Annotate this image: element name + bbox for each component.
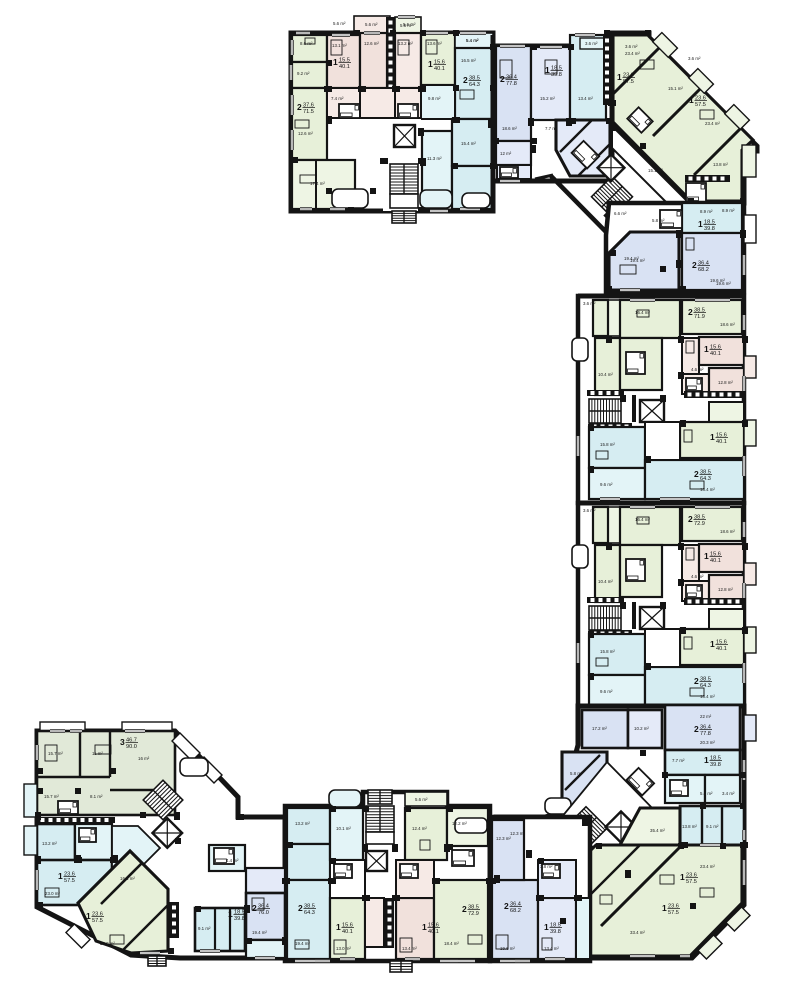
svg-text:18.4 m²: 18.4 m² <box>700 487 715 492</box>
svg-text:16.5 m²: 16.5 m² <box>461 58 476 63</box>
svg-text:8.9 m²: 8.9 m² <box>722 208 735 213</box>
svg-text:2: 2 <box>298 903 303 913</box>
svg-text:39.8: 39.8 <box>704 226 715 232</box>
svg-text:33.4 m²: 33.4 m² <box>630 930 645 935</box>
svg-text:5.6 m²: 5.6 m² <box>365 22 378 27</box>
svg-text:12.8 m²: 12.8 m² <box>718 380 733 385</box>
svg-text:12 m²: 12 m² <box>500 151 512 156</box>
svg-text:1: 1 <box>544 922 549 932</box>
svg-text:3: 3 <box>120 737 125 747</box>
svg-text:57.5: 57.5 <box>92 918 103 924</box>
svg-text:18.6 m²: 18.6 m² <box>720 529 735 534</box>
svg-text:77.8: 77.8 <box>506 81 517 87</box>
svg-text:1: 1 <box>680 872 685 882</box>
svg-text:9.1 m²: 9.1 m² <box>198 926 211 931</box>
svg-text:72.9: 72.9 <box>694 521 705 527</box>
svg-text:12.4 m²: 12.4 m² <box>412 826 427 831</box>
svg-text:40.1: 40.1 <box>339 64 350 70</box>
svg-text:7.4 m²: 7.4 m² <box>331 96 344 101</box>
svg-text:9.6 m²: 9.6 m² <box>600 689 613 694</box>
svg-text:1: 1 <box>704 755 709 765</box>
svg-text:8.6 m²: 8.6 m² <box>300 41 313 46</box>
svg-text:13.6 m²: 13.6 m² <box>427 41 442 46</box>
svg-text:3.6 m²: 3.6 m² <box>625 44 638 49</box>
svg-text:5.8 m²: 5.8 m² <box>570 771 583 776</box>
svg-text:57.5: 57.5 <box>64 878 75 884</box>
svg-text:12.3 m²: 12.3 m² <box>510 831 525 836</box>
svg-text:1: 1 <box>662 903 667 913</box>
svg-text:1: 1 <box>704 551 709 561</box>
svg-text:2: 2 <box>688 514 693 524</box>
svg-text:1: 1 <box>698 219 703 229</box>
svg-text:20.3 m²: 20.3 m² <box>700 740 715 745</box>
svg-text:18.4 m²: 18.4 m² <box>700 694 715 699</box>
svg-text:1: 1 <box>545 65 550 75</box>
svg-text:2: 2 <box>297 102 302 112</box>
svg-text:13.2 m²: 13.2 m² <box>42 841 57 846</box>
svg-text:19.4 m²: 19.4 m² <box>295 941 310 946</box>
svg-text:57.5: 57.5 <box>695 102 706 108</box>
svg-text:39.8: 39.8 <box>234 916 245 922</box>
svg-text:2: 2 <box>252 903 257 913</box>
svg-text:40.1: 40.1 <box>710 558 721 564</box>
svg-text:1: 1 <box>422 922 427 932</box>
svg-text:2: 2 <box>500 74 505 84</box>
svg-text:4.6 m²: 4.6 m² <box>691 367 704 372</box>
svg-text:12.2 m²: 12.2 m² <box>452 821 467 826</box>
svg-text:2: 2 <box>504 901 509 911</box>
svg-text:68.2: 68.2 <box>510 908 521 914</box>
svg-text:1: 1 <box>86 911 91 921</box>
svg-text:23.0 m²: 23.0 m² <box>45 891 60 896</box>
svg-text:22 m²: 22 m² <box>700 714 712 719</box>
svg-text:40.1: 40.1 <box>434 66 445 72</box>
svg-text:76.0: 76.0 <box>258 910 269 916</box>
svg-text:39.8: 39.8 <box>710 762 721 768</box>
svg-text:68.2: 68.2 <box>698 267 709 273</box>
svg-text:12.8 m²: 12.8 m² <box>718 587 733 592</box>
svg-text:23.4 m²: 23.4 m² <box>625 51 640 56</box>
svg-text:10.1 m²: 10.1 m² <box>336 826 351 831</box>
svg-text:77.8: 77.8 <box>700 731 711 737</box>
svg-text:1: 1 <box>58 871 63 881</box>
svg-text:3.6 m²: 3.6 m² <box>583 508 596 513</box>
svg-text:16.1 m²: 16.1 m² <box>120 876 135 881</box>
svg-text:1: 1 <box>336 922 341 932</box>
svg-text:64.3: 64.3 <box>700 476 711 482</box>
svg-text:15.2 m²: 15.2 m² <box>540 96 555 101</box>
svg-text:5.8 m²: 5.8 m² <box>652 218 665 223</box>
svg-text:13.4 m²: 13.4 m² <box>402 946 417 951</box>
svg-text:10.4 m²: 10.4 m² <box>598 372 613 377</box>
svg-text:23.0 m²: 23.0 m² <box>100 941 115 946</box>
svg-text:64.3: 64.3 <box>304 910 315 916</box>
svg-text:40.1: 40.1 <box>342 929 353 935</box>
svg-text:13.8 m²: 13.8 m² <box>713 162 728 167</box>
svg-text:18.4 m²: 18.4 m² <box>444 941 459 946</box>
svg-text:1: 1 <box>617 72 622 82</box>
svg-text:15.1 m²: 15.1 m² <box>648 168 663 173</box>
svg-text:1: 1 <box>704 344 709 354</box>
svg-text:3.4 m²: 3.4 m² <box>722 791 735 796</box>
svg-text:39.8: 39.8 <box>550 929 561 935</box>
svg-text:3.6 m²: 3.6 m² <box>585 41 598 46</box>
svg-text:19.6 m²: 19.6 m² <box>716 281 731 286</box>
svg-text:64.3: 64.3 <box>469 82 480 88</box>
svg-text:5.6 m²: 5.6 m² <box>415 797 428 802</box>
svg-text:13.0 m²: 13.0 m² <box>336 946 351 951</box>
svg-text:13.4 m²: 13.4 m² <box>578 96 593 101</box>
svg-text:16 m²: 16 m² <box>138 756 150 761</box>
svg-text:90.0: 90.0 <box>126 744 137 750</box>
svg-text:40.1: 40.1 <box>716 646 727 652</box>
svg-text:13.2 m²: 13.2 m² <box>398 41 413 46</box>
svg-text:1: 1 <box>428 59 433 69</box>
svg-text:10.4 m²: 10.4 m² <box>598 579 613 584</box>
svg-text:71.5: 71.5 <box>303 109 314 115</box>
svg-text:7.7 m²: 7.7 m² <box>672 758 685 763</box>
svg-text:8.1 m²: 8.1 m² <box>90 794 103 799</box>
svg-text:39.8: 39.8 <box>551 72 562 78</box>
svg-text:11 m²: 11 m² <box>92 751 103 756</box>
svg-text:57.5: 57.5 <box>623 79 634 85</box>
svg-text:4.4 m²: 4.4 m² <box>226 858 239 863</box>
svg-text:17.2 m²: 17.2 m² <box>592 726 607 731</box>
svg-text:57.5: 57.5 <box>668 910 679 916</box>
svg-text:1: 1 <box>228 909 233 919</box>
svg-text:13.2 m²: 13.2 m² <box>295 821 310 826</box>
svg-text:57.5: 57.5 <box>686 879 697 885</box>
svg-text:10.2 m²: 10.2 m² <box>634 726 649 731</box>
svg-text:12.3 m²: 12.3 m² <box>496 836 511 841</box>
svg-text:17.4 m²: 17.4 m² <box>310 181 325 186</box>
svg-text:9.6 m²: 9.6 m² <box>600 482 613 487</box>
svg-text:13.8 m²: 13.8 m² <box>682 824 697 829</box>
svg-text:15.7 m²: 15.7 m² <box>48 751 63 756</box>
svg-text:1: 1 <box>710 432 715 442</box>
svg-text:2: 2 <box>694 469 699 479</box>
svg-text:11.3 m²: 11.3 m² <box>427 156 442 161</box>
svg-text:6.6 m²: 6.6 m² <box>614 211 627 216</box>
svg-text:9.2 m²: 9.2 m² <box>297 71 310 76</box>
svg-text:8.9 m²: 8.9 m² <box>700 209 713 214</box>
svg-text:15.8 m²: 15.8 m² <box>600 442 615 447</box>
svg-text:19.4 m²: 19.4 m² <box>624 256 639 261</box>
svg-text:64.3: 64.3 <box>700 683 711 689</box>
svg-text:18.6 m²: 18.6 m² <box>502 126 517 131</box>
svg-text:13.1 m²: 13.1 m² <box>332 43 347 48</box>
svg-text:4.6 m²: 4.6 m² <box>691 574 704 579</box>
svg-text:2: 2 <box>694 724 699 734</box>
svg-text:2: 2 <box>463 75 468 85</box>
svg-text:23.4 m²: 23.4 m² <box>705 121 720 126</box>
svg-text:9.8 m²: 9.8 m² <box>428 96 441 101</box>
svg-text:5.4 m²: 5.4 m² <box>466 38 479 43</box>
svg-text:7.7 m²: 7.7 m² <box>545 126 558 131</box>
svg-text:1: 1 <box>710 639 715 649</box>
svg-text:5.6 m²: 5.6 m² <box>403 22 416 27</box>
svg-text:2: 2 <box>692 260 697 270</box>
svg-text:18.6 m²: 18.6 m² <box>720 322 735 327</box>
svg-text:1: 1 <box>333 57 338 67</box>
svg-text:5.6 m²: 5.6 m² <box>333 21 346 26</box>
svg-text:40.1: 40.1 <box>710 351 721 357</box>
svg-text:35.4 m²: 35.4 m² <box>650 828 665 833</box>
svg-text:15.8 m²: 15.8 m² <box>600 649 615 654</box>
svg-text:23.4 m²: 23.4 m² <box>700 864 715 869</box>
svg-text:40.1: 40.1 <box>428 929 439 935</box>
svg-text:19.4 m²: 19.4 m² <box>252 930 267 935</box>
svg-text:12.6 m²: 12.6 m² <box>364 41 379 46</box>
svg-text:2: 2 <box>462 904 467 914</box>
svg-text:2: 2 <box>694 676 699 686</box>
svg-text:40.1: 40.1 <box>716 439 727 445</box>
svg-text:3.6 m²: 3.6 m² <box>688 56 701 61</box>
svg-text:3.8 m²: 3.8 m² <box>540 864 553 869</box>
svg-text:15.7 m²: 15.7 m² <box>44 794 59 799</box>
svg-text:9.1 m²: 9.1 m² <box>706 824 719 829</box>
svg-text:15.4 m²: 15.4 m² <box>461 141 476 146</box>
svg-text:5.6 m²: 5.6 m² <box>700 791 713 796</box>
svg-text:71.9: 71.9 <box>694 314 705 320</box>
svg-text:2: 2 <box>688 307 693 317</box>
svg-text:3.6 m²: 3.6 m² <box>583 301 596 306</box>
svg-text:12.6 m²: 12.6 m² <box>298 131 313 136</box>
svg-text:15.1 m²: 15.1 m² <box>668 86 683 91</box>
svg-text:1: 1 <box>689 95 694 105</box>
svg-text:72.9: 72.9 <box>468 911 479 917</box>
